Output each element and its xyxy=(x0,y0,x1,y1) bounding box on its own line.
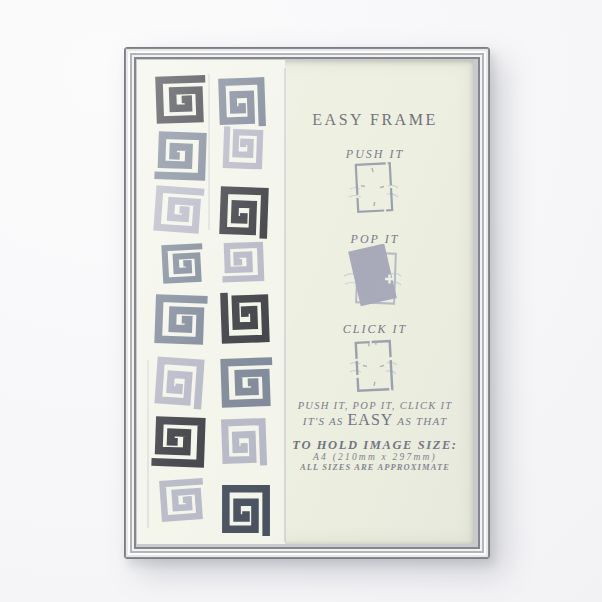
pop-frame-icon xyxy=(344,244,404,312)
push-frame-icon xyxy=(349,159,399,221)
step-label-click: CLICK IT xyxy=(343,322,407,337)
size-heading: TO HOLD IMAGE SIZE: xyxy=(292,438,457,453)
size-value: A4 (210mm x 297mm) xyxy=(313,452,437,462)
tagline-post: AS THAT xyxy=(397,415,447,427)
easy-frame-title: EASY FRAME xyxy=(312,111,437,129)
chrome-frame: EASY FRAME PUSH IT POP IT xyxy=(124,47,490,559)
instruction-column: EASY FRAME PUSH IT POP IT xyxy=(137,60,473,544)
tagline-line2: IT'S AS EASY AS THAT xyxy=(303,411,447,429)
tagline-pre: IT'S AS xyxy=(303,415,344,427)
product-photo: EASY FRAME PUSH IT POP IT xyxy=(0,0,602,602)
tagline-emphasis: EASY xyxy=(348,411,394,429)
click-frame-icon xyxy=(350,336,398,400)
size-note: ALL SIZES ARE APPROXIMATE xyxy=(300,462,450,472)
insert-paper: EASY FRAME PUSH IT POP IT xyxy=(137,60,473,544)
tagline-line1: PUSH IT, POP IT, CLICK IT xyxy=(298,400,453,411)
